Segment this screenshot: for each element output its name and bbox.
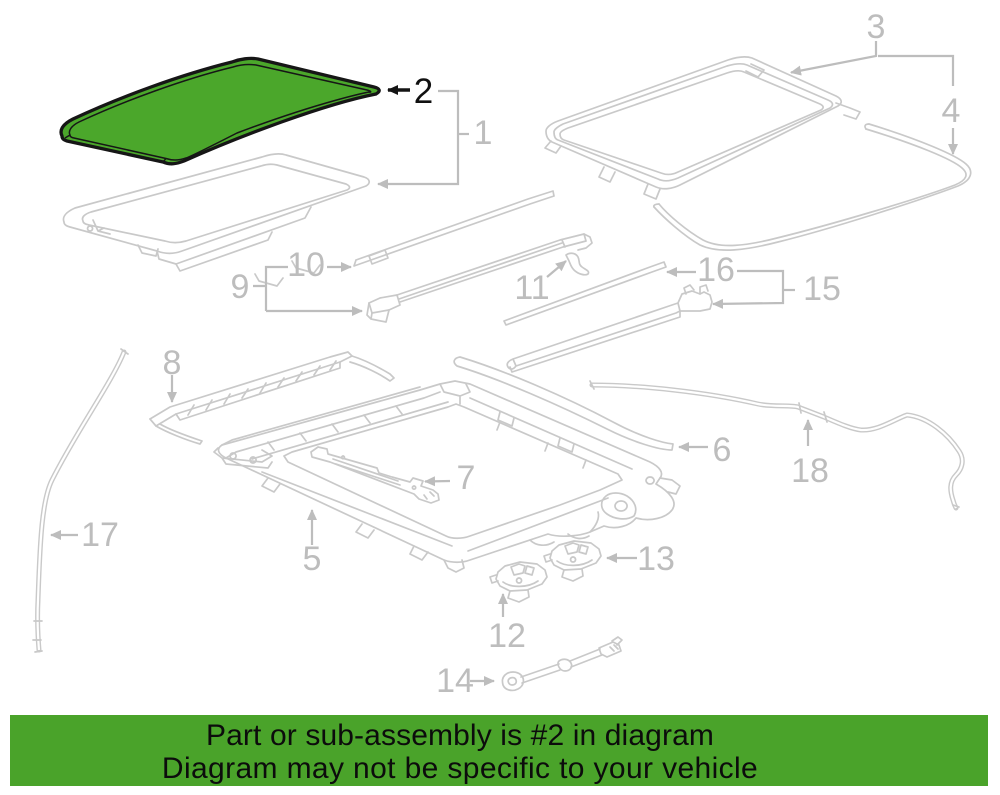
svg-text:Diagram may not be specific to: Diagram may not be specific to your vehi… xyxy=(162,752,758,785)
svg-text:5: 5 xyxy=(303,540,322,578)
svg-text:17: 17 xyxy=(81,516,119,554)
svg-text:6: 6 xyxy=(713,431,732,469)
svg-text:18: 18 xyxy=(791,452,829,490)
svg-text:8: 8 xyxy=(163,344,182,382)
svg-text:1: 1 xyxy=(474,114,493,152)
svg-text:4: 4 xyxy=(942,92,961,130)
svg-text:3: 3 xyxy=(867,8,886,46)
svg-text:10: 10 xyxy=(287,246,325,284)
svg-text:2: 2 xyxy=(414,72,433,111)
svg-text:9: 9 xyxy=(231,268,250,306)
svg-text:Part or sub-assembly is #2 in: Part or sub-assembly is #2 in diagram xyxy=(206,719,714,752)
svg-text:13: 13 xyxy=(637,540,675,578)
svg-text:7: 7 xyxy=(457,459,476,497)
svg-text:15: 15 xyxy=(803,270,841,308)
svg-text:11: 11 xyxy=(514,269,549,307)
svg-text:16: 16 xyxy=(697,251,735,289)
svg-text:12: 12 xyxy=(488,617,526,655)
svg-text:14: 14 xyxy=(436,662,474,700)
